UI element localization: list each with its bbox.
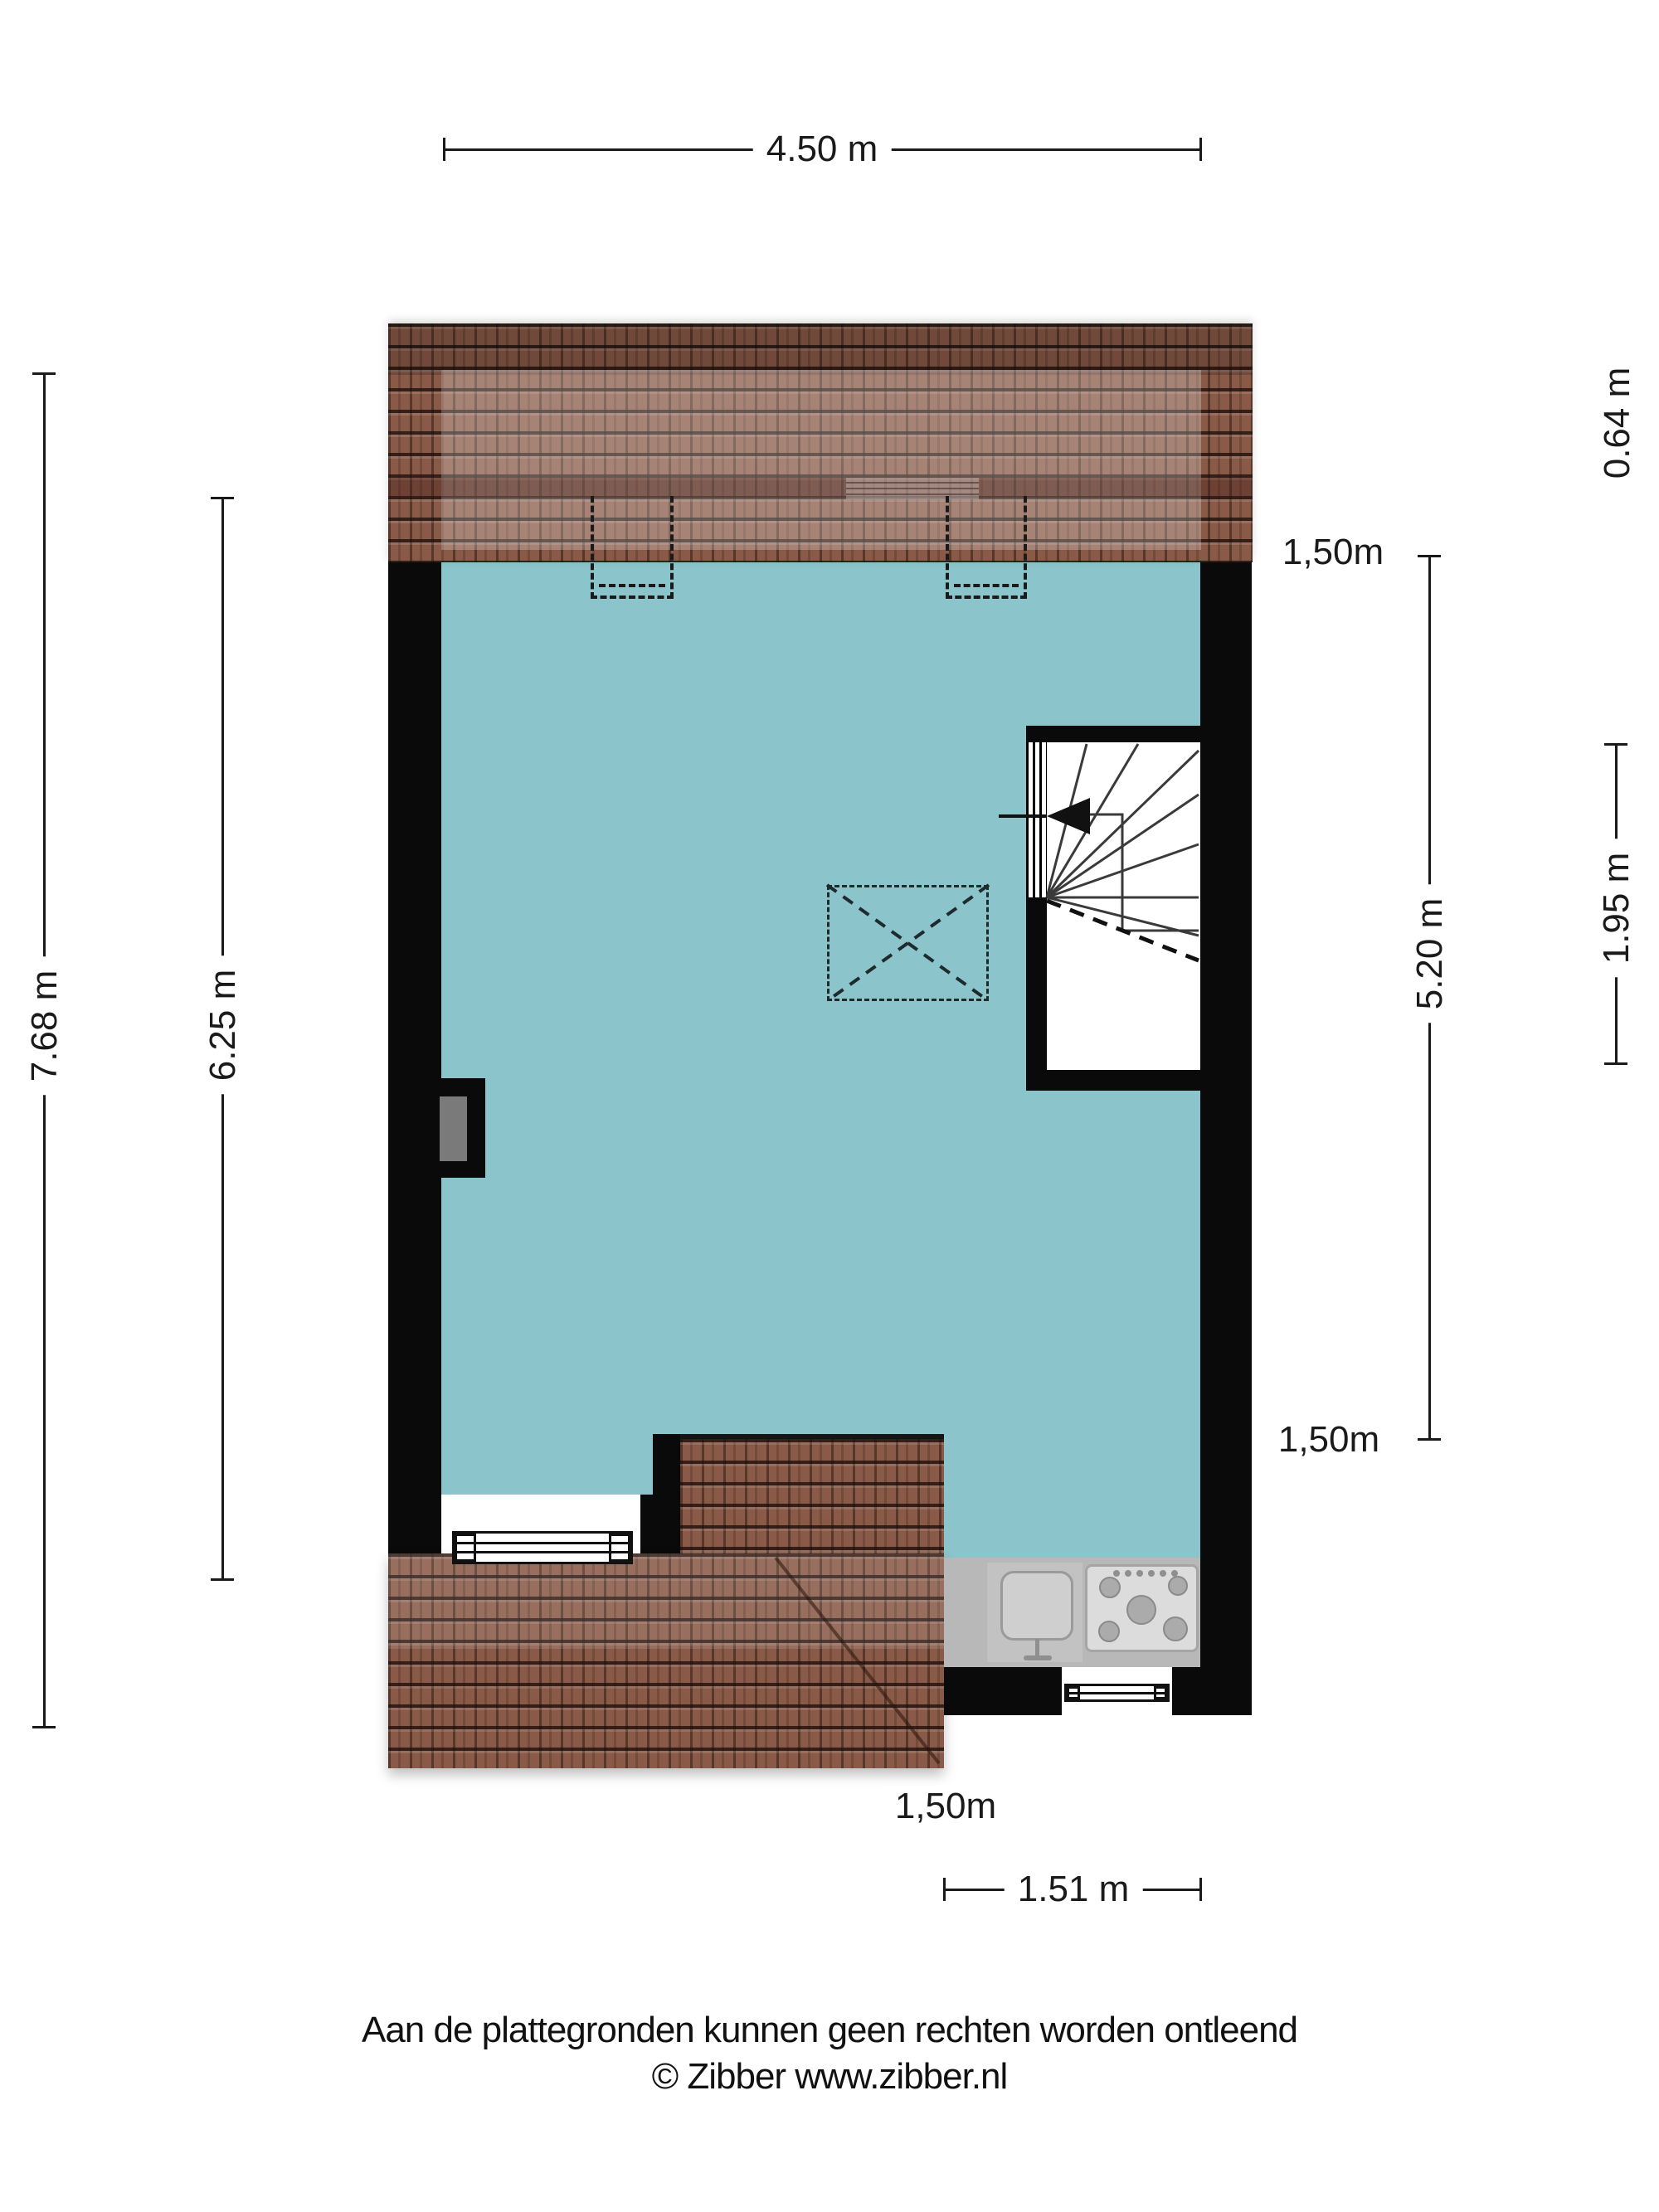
footer-disclaimer: Aan de plattegronden kunnen geen rechten… [0,2007,1659,2054]
dim-inner-left-tick-b [211,1578,234,1581]
wall-right [1200,562,1252,1715]
stairs-wall-bottom [1026,1070,1200,1091]
dim-inner-left-tick-a [211,497,234,499]
window-bottom [1064,1684,1170,1702]
dim-outer-right-tick-b [1604,1062,1627,1065]
stairs-wall-top [1026,726,1200,742]
dim-knee-top-label: 1,50m [1269,532,1397,573]
roof-dormer-lower [388,1553,944,1768]
stairs-railing-hatch [1026,742,1047,897]
dim-bottom-tick-b [1199,1878,1202,1901]
footer-copyright: © Zibber www.zibber.nl [0,2054,1659,2100]
footer: Aan de plattegronden kunnen geen rechten… [0,2007,1659,2101]
wall-bottom-left-seg [944,1667,1062,1715]
wall-recess-right [640,1495,680,1558]
roof-top [388,323,1253,562]
dim-outer-left-label: 7.68 m [24,957,66,1096]
roof-window-right-sill [954,584,1019,587]
dim-inner-right-label: 5.20 m [1409,885,1451,1023]
floorplan: Kast Slaapkamer Keuken [0,0,1659,2212]
sink-faucet-bar [1024,1655,1052,1660]
window-left-mullion-a [455,1542,630,1544]
roof-window-left-sill [599,584,665,587]
dim-outer-left-tick-a [32,372,56,375]
dim-top-tick-b [1199,138,1202,161]
roof-dormer-upper [680,1434,944,1558]
chimney-flue [440,1096,467,1161]
dim-bottom-label: 1.51 m [1005,1869,1143,1910]
stairs-interior [1047,742,1200,1070]
skylight-outline [827,885,989,1001]
roof-window-left [591,496,674,599]
kast-area-overlay [441,370,1201,550]
dim-bottom-tick-a [943,1878,946,1901]
dim-knee-bottom-label: 1,50m [1265,1419,1393,1461]
wall-dormer-left-strip [653,1434,680,1500]
window-left [452,1531,633,1564]
stairs-wall-left-lower [1026,897,1047,1091]
dim-top-label: 4.50 m [753,129,892,170]
dim-bottom-knee-label: 1,50m [882,1786,1010,1827]
window-left-cap-b [609,1534,630,1562]
sink-icon [1000,1571,1073,1641]
dim-top-tick-a [443,138,445,161]
window-bottom-mullion [1067,1692,1167,1694]
floorplan-page: { "plan": { "title_rooms": { "kast": "Ka… [0,0,1659,2212]
dim-inner-right-tick-b [1418,1438,1441,1441]
wall-left [388,562,441,1553]
window-left-cap-a [455,1534,476,1562]
wall-bottom-right-seg [1172,1667,1252,1715]
stove-icon [1085,1564,1199,1652]
dim-inner-left-label: 6.25 m [202,956,244,1095]
dim-outer-right-tick-a [1604,743,1627,746]
roof-top-ridge-shade [388,323,1253,375]
roof-plate-band [388,478,1253,498]
window-left-mullion-b [455,1551,630,1553]
dim-roof-depth-label: 0.64 m [1597,354,1638,493]
dim-outer-right-label: 1.95 m [1596,839,1637,978]
dim-outer-left-tick-b [32,1726,56,1728]
dim-inner-right-tick-a [1418,555,1441,557]
roof-window-right [946,496,1027,599]
roof-dormer-light-band [388,1553,944,1649]
